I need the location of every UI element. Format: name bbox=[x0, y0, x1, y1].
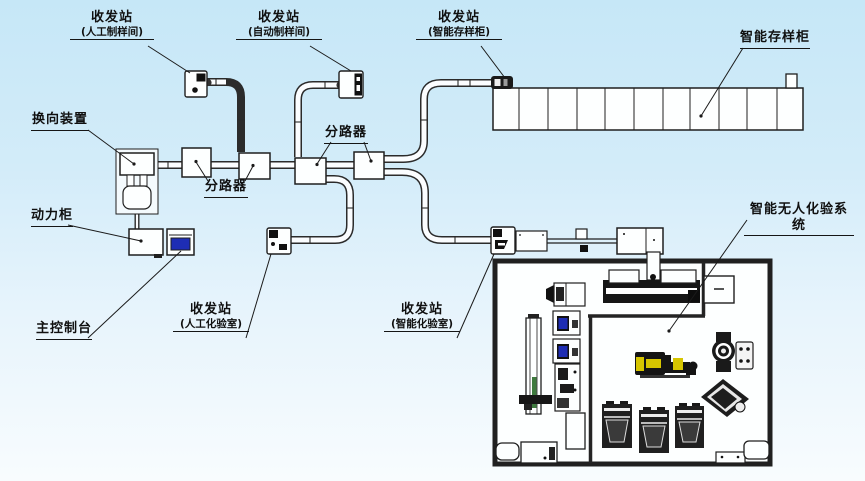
power-cabinet-device bbox=[129, 229, 163, 258]
smart-unmanned-lab-room bbox=[495, 252, 770, 464]
label-station-storage: 收发站 (智能存样柜) bbox=[416, 10, 502, 40]
bin-left bbox=[496, 443, 519, 460]
station-auto-prep-device bbox=[336, 71, 363, 98]
diagram-canvas bbox=[0, 0, 865, 481]
control-terminal-2 bbox=[553, 339, 580, 363]
label-splitter-right: 分路器 bbox=[324, 125, 368, 144]
equipment-stack bbox=[555, 364, 580, 411]
label-smart-storage-cabinet: 智能存样柜 bbox=[740, 30, 810, 49]
bin-right bbox=[744, 441, 769, 459]
label-power-cabinet: 动力柜 bbox=[31, 208, 73, 227]
sample-tray bbox=[716, 452, 745, 463]
label-smart-unmanned-lab: 智能无人化验系统 bbox=[744, 202, 854, 236]
analyzer-cabinet-1 bbox=[602, 401, 632, 448]
analyzer-cabinet-3 bbox=[675, 403, 704, 448]
label-diverter: 换向装置 bbox=[31, 112, 89, 131]
label-station-smart-lab: 收发站 (智能化验室) bbox=[384, 302, 460, 332]
analyzer-cabinet-2 bbox=[639, 407, 669, 453]
bench-device-left bbox=[521, 442, 557, 463]
splitter-box-3 bbox=[295, 158, 326, 184]
tall-cabinet bbox=[566, 413, 585, 449]
terminal-screen bbox=[559, 318, 568, 329]
station-manual-prep-device bbox=[185, 71, 212, 97]
robot-yellow-segment bbox=[636, 357, 644, 371]
diverter-device bbox=[116, 149, 158, 214]
station-storage-device bbox=[491, 76, 513, 89]
label-main-console: 主控制台 bbox=[36, 321, 92, 340]
station-manual-lab-device bbox=[267, 228, 291, 254]
wall-box-unit bbox=[704, 276, 734, 303]
lab-feed-mechanism bbox=[516, 228, 663, 254]
robot-yellow-segment bbox=[673, 358, 683, 370]
control-terminal-1 bbox=[553, 311, 580, 335]
robot-yellow-segment bbox=[646, 359, 661, 368]
gantry-rail bbox=[603, 270, 700, 303]
console-screen bbox=[171, 238, 190, 250]
label-station-auto-prep: 收发站 (自动制样间) bbox=[236, 10, 322, 40]
smart-storage-cabinet bbox=[493, 74, 803, 130]
label-station-manual-lab: 收发站 (人工化验室) bbox=[173, 302, 249, 332]
cabinet-end-stub bbox=[786, 74, 797, 88]
terminal-screen bbox=[559, 346, 568, 357]
pneumatic-sample-transport-diagram: 收发站 (人工制样间) 收发站 (自动制样间) 收发站 (智能存样柜) 智能存样… bbox=[0, 0, 865, 481]
label-splitter-left: 分路器 bbox=[204, 179, 248, 198]
station-smart-lab-device bbox=[491, 227, 515, 254]
label-station-manual-prep: 收发站 (人工制样间) bbox=[70, 10, 154, 40]
